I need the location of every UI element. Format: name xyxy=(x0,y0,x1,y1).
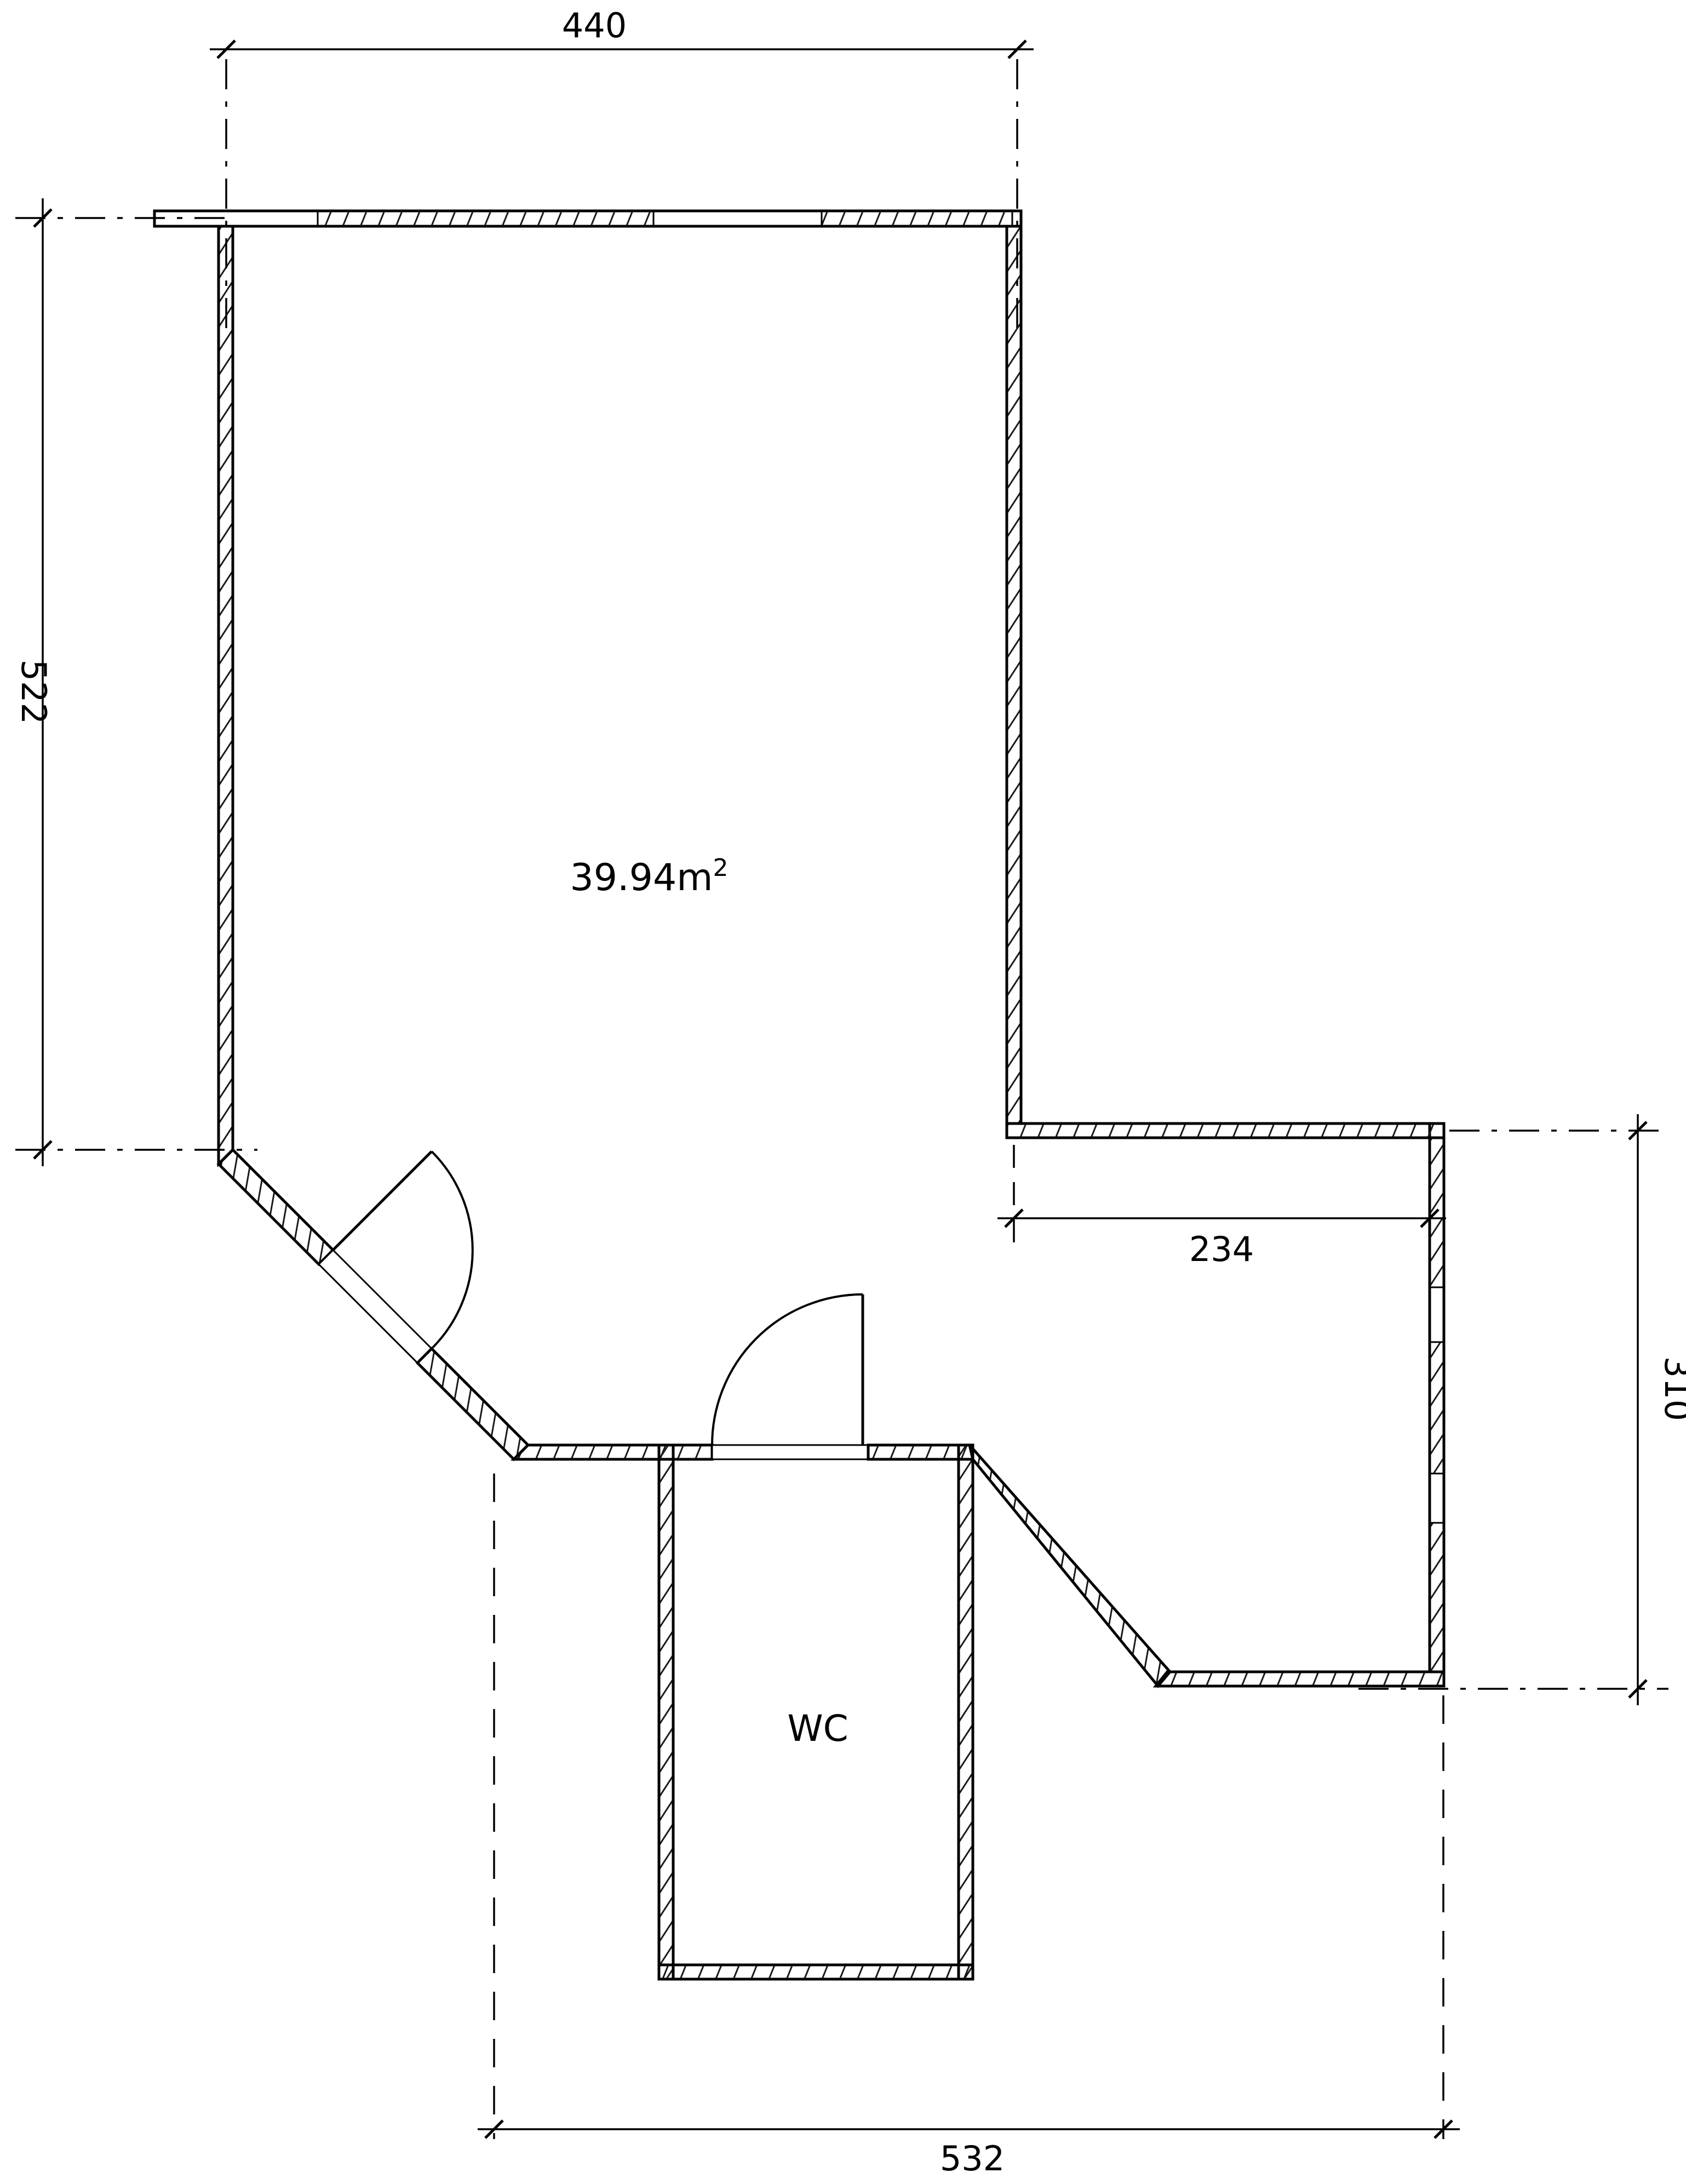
dimension-label-top: 440 xyxy=(562,5,627,45)
dimension-label-inner-right: 234 xyxy=(1189,1229,1254,1269)
wall-bottom-right xyxy=(1156,1672,1444,1686)
doors xyxy=(333,1151,863,1445)
dimension-label-left: 522 xyxy=(14,660,54,724)
dimension-right xyxy=(1358,1114,1668,1705)
wall-wc-right xyxy=(959,1445,973,1979)
wall-bottom-left-band xyxy=(514,1445,659,1459)
door-left-swing-arc xyxy=(432,1151,473,1349)
wall-wc-left xyxy=(659,1445,673,1979)
floor-plan-drawing: 440 522 234 310 532 39.94m2 WC xyxy=(0,0,1686,2184)
wall-step xyxy=(1007,1123,1444,1138)
dimension-label-right: 310 xyxy=(1657,1356,1686,1421)
wall-diagonal-left-upper xyxy=(219,1150,333,1264)
wall-diagonal-right xyxy=(970,1445,1170,1686)
wall-wc-bottom xyxy=(659,1965,973,1979)
wall-right xyxy=(1430,1123,1444,1672)
wall-wc-flank-right xyxy=(868,1445,973,1459)
dimension-top xyxy=(210,41,1034,340)
door-left-threshold xyxy=(319,1250,432,1363)
door-wc-threshold xyxy=(712,1445,868,1459)
dimensions xyxy=(15,41,1668,2139)
room-label-wc: WC xyxy=(787,1707,848,1750)
door-left-leaf xyxy=(333,1151,432,1250)
wall-left xyxy=(219,226,233,1164)
wall-top-right xyxy=(1007,226,1021,1123)
door-wc-swing-arc xyxy=(712,1294,863,1445)
floor-plan-sheet: 440 522 234 310 532 39.94m2 WC xyxy=(0,0,1686,2184)
wall-top xyxy=(154,211,1021,226)
dimension-label-bottom: 532 xyxy=(940,2139,1005,2179)
area-label: 39.94m2 xyxy=(570,854,729,899)
wall-diagonal-left-lower xyxy=(417,1349,528,1459)
